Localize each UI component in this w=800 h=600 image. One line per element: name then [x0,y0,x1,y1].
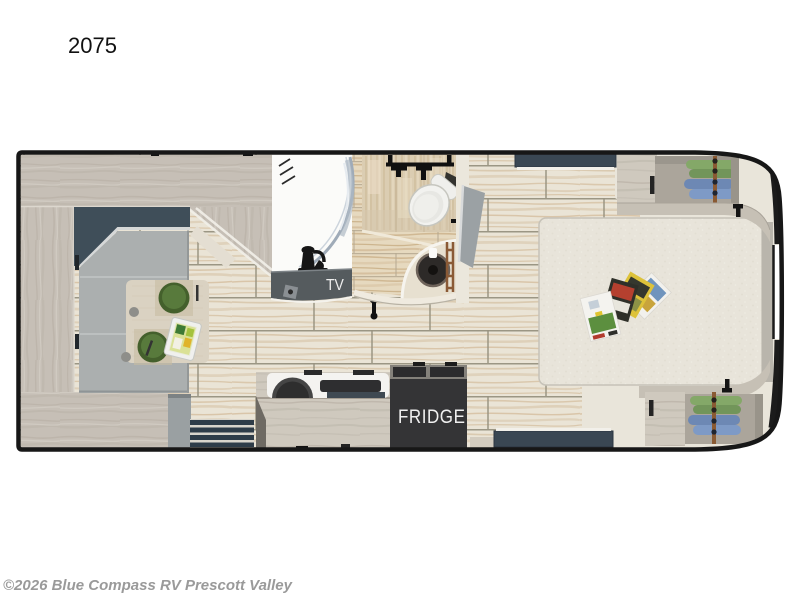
svg-text:FRIDGE: FRIDGE [398,405,465,427]
svg-text:©2026 Blue Compass RV Prescott: ©2026 Blue Compass RV Prescott Valley [3,577,293,594]
svg-text:2075: 2075 [68,33,117,58]
svg-text:TV: TV [326,277,344,294]
